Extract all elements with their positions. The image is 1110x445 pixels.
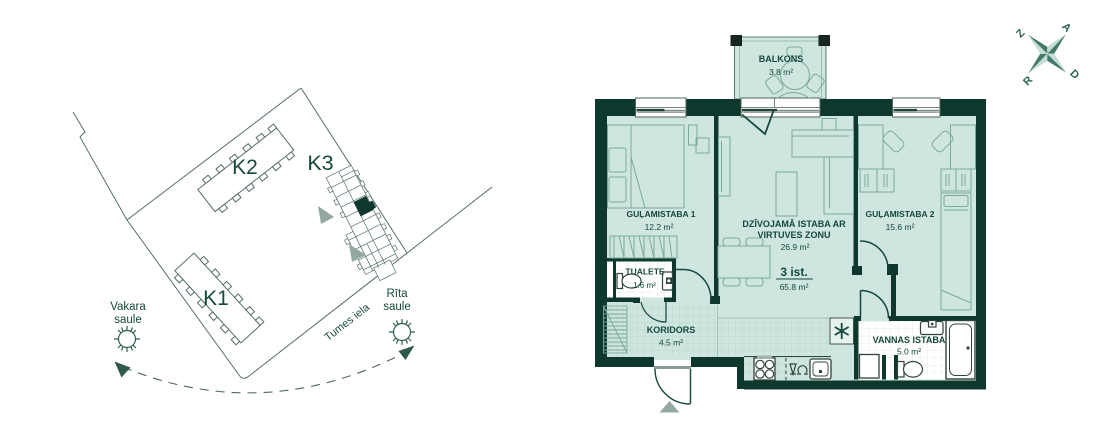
svg-text:saule: saule <box>114 314 142 326</box>
svg-text:1.6 m²: 1.6 m² <box>633 281 656 290</box>
svg-text:12.2 m²: 12.2 m² <box>645 222 674 232</box>
svg-text:65.8 m²: 65.8 m² <box>780 282 809 292</box>
svg-text:TUALETE: TUALETE <box>625 267 665 277</box>
svg-text:26.9 m²: 26.9 m² <box>781 242 810 252</box>
svg-text:3 ist.: 3 ist. <box>780 265 807 279</box>
svg-text:VANNAS ISTABA: VANNAS ISTABA <box>873 335 946 345</box>
svg-text:5.0 m²: 5.0 m² <box>897 347 921 357</box>
svg-text:BALKONS: BALKONS <box>759 54 804 64</box>
svg-text:VIRTUVES ZONU: VIRTUVES ZONU <box>757 230 830 240</box>
svg-text:K3: K3 <box>307 151 333 175</box>
svg-text:KORIDORS: KORIDORS <box>647 325 696 335</box>
svg-text:GUĻAMISTABA 2: GUĻAMISTABA 2 <box>866 209 935 219</box>
svg-text:15.6 m²: 15.6 m² <box>886 222 915 232</box>
svg-text:Rīta: Rīta <box>386 288 408 300</box>
svg-text:GUĻAMISTABA 1: GUĻAMISTABA 1 <box>627 209 696 219</box>
svg-text:K1: K1 <box>203 287 229 310</box>
svg-text:K2: K2 <box>232 156 258 179</box>
svg-text:3.8 m²: 3.8 m² <box>769 67 793 77</box>
svg-text:Vakara: Vakara <box>110 301 146 313</box>
svg-text:4.5 m²: 4.5 m² <box>659 338 683 348</box>
svg-text:DZĪVOJAMĀ ISTABA AR: DZĪVOJAMĀ ISTABA AR <box>742 219 846 229</box>
svg-text:saule: saule <box>383 301 411 313</box>
